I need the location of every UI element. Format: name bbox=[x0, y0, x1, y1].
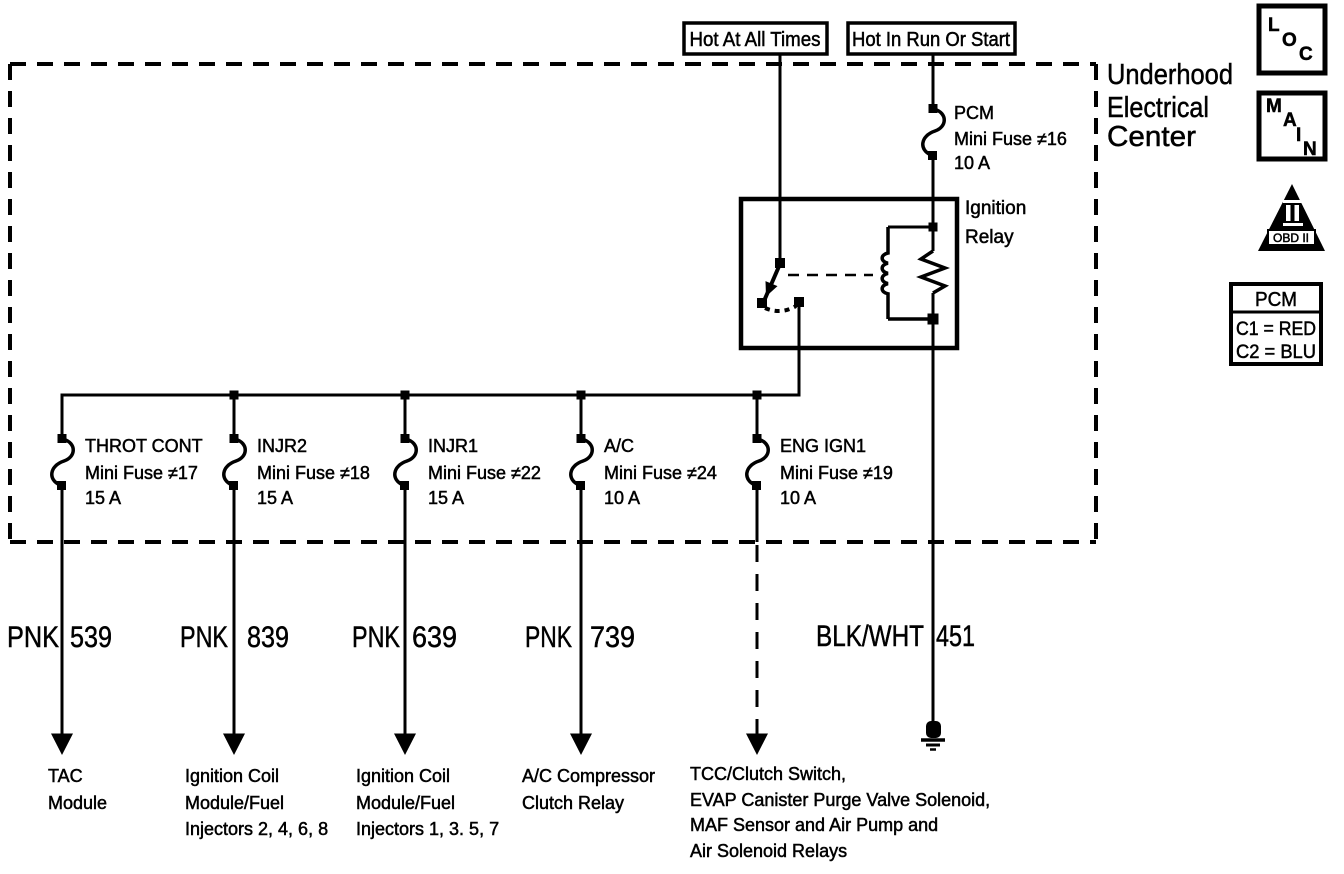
svg-text:PNK: PNK bbox=[180, 621, 228, 654]
svg-text:INJR1: INJR1 bbox=[428, 436, 478, 456]
svg-text:PNK: PNK bbox=[7, 621, 59, 654]
svg-text:639: 639 bbox=[412, 621, 457, 654]
svg-text:839: 839 bbox=[247, 621, 289, 654]
svg-text:Underhood: Underhood bbox=[1107, 59, 1233, 91]
svg-text:Module/Fuel: Module/Fuel bbox=[185, 793, 284, 813]
svg-text:A/C Compressor: A/C Compressor bbox=[522, 766, 655, 786]
svg-text:15 A: 15 A bbox=[85, 488, 121, 508]
svg-text:Mini Fuse ≠19: Mini Fuse ≠19 bbox=[780, 463, 893, 483]
svg-text:TAC: TAC bbox=[48, 766, 83, 786]
svg-text:PNK: PNK bbox=[352, 621, 400, 654]
svg-text:PCM: PCM bbox=[954, 103, 994, 123]
svg-text:Mini Fuse ≠24: Mini Fuse ≠24 bbox=[604, 463, 717, 483]
svg-text:739: 739 bbox=[590, 621, 635, 654]
svg-text:PCM: PCM bbox=[1255, 289, 1297, 311]
svg-text:Center: Center bbox=[1107, 121, 1196, 153]
svg-text:ENG IGN1: ENG IGN1 bbox=[780, 436, 866, 456]
svg-text:THROT CONT: THROT CONT bbox=[85, 436, 203, 456]
svg-text:Relay: Relay bbox=[965, 227, 1014, 248]
svg-text:Injectors 1, 3. 5, 7: Injectors 1, 3. 5, 7 bbox=[356, 819, 499, 839]
svg-text:Ignition: Ignition bbox=[965, 198, 1026, 219]
svg-text:INJR2: INJR2 bbox=[257, 436, 307, 456]
svg-text:C2 = BLU: C2 = BLU bbox=[1236, 342, 1316, 363]
svg-text:N: N bbox=[1303, 139, 1317, 160]
svg-text:OBD II: OBD II bbox=[1273, 231, 1309, 245]
svg-text:C1 = RED: C1 = RED bbox=[1236, 319, 1316, 340]
svg-text:Ignition Coil: Ignition Coil bbox=[356, 766, 450, 786]
svg-text:EVAP Canister Purge Valve Sole: EVAP Canister Purge Valve Solenoid, bbox=[690, 790, 990, 810]
svg-text:PNK: PNK bbox=[525, 621, 572, 654]
svg-text:C: C bbox=[1299, 44, 1313, 65]
svg-text:10 A: 10 A bbox=[604, 488, 640, 508]
svg-text:451: 451 bbox=[936, 620, 975, 653]
svg-text:MAF Sensor and Air Pump and: MAF Sensor and Air Pump and bbox=[690, 815, 938, 835]
svg-text:BLK/WHT: BLK/WHT bbox=[816, 620, 924, 653]
svg-text:Module/Fuel: Module/Fuel bbox=[356, 793, 455, 813]
svg-text:Ignition Coil: Ignition Coil bbox=[185, 766, 279, 786]
svg-text:Injectors 2, 4, 6, 8: Injectors 2, 4, 6, 8 bbox=[185, 819, 328, 839]
svg-text:O: O bbox=[1282, 30, 1297, 51]
svg-text:15 A: 15 A bbox=[428, 488, 464, 508]
svg-text:A/C: A/C bbox=[604, 436, 634, 456]
svg-text:Clutch Relay: Clutch Relay bbox=[522, 793, 624, 813]
svg-text:Hot At All Times: Hot At All Times bbox=[690, 29, 821, 51]
svg-text:Air Solenoid Relays: Air Solenoid Relays bbox=[690, 841, 847, 861]
svg-text:I: I bbox=[1296, 125, 1301, 146]
svg-text:Hot In Run Or Start: Hot In Run Or Start bbox=[852, 29, 1010, 51]
svg-text:10 A: 10 A bbox=[954, 153, 990, 173]
svg-text:A: A bbox=[1283, 110, 1297, 131]
svg-text:M: M bbox=[1266, 96, 1282, 117]
svg-text:Module: Module bbox=[48, 793, 107, 813]
svg-text:L: L bbox=[1268, 15, 1280, 36]
svg-text:10 A: 10 A bbox=[780, 488, 816, 508]
svg-text:539: 539 bbox=[70, 621, 112, 654]
svg-text:Mini Fuse ≠16: Mini Fuse ≠16 bbox=[954, 129, 1067, 149]
svg-text:Mini Fuse ≠18: Mini Fuse ≠18 bbox=[257, 463, 370, 483]
svg-text:Electrical: Electrical bbox=[1107, 92, 1209, 124]
svg-text:Mini Fuse ≠22: Mini Fuse ≠22 bbox=[428, 463, 541, 483]
svg-text:Mini Fuse ≠17: Mini Fuse ≠17 bbox=[85, 463, 198, 483]
svg-text:15 A: 15 A bbox=[257, 488, 293, 508]
svg-text:TCC/Clutch Switch,: TCC/Clutch Switch, bbox=[690, 764, 846, 784]
